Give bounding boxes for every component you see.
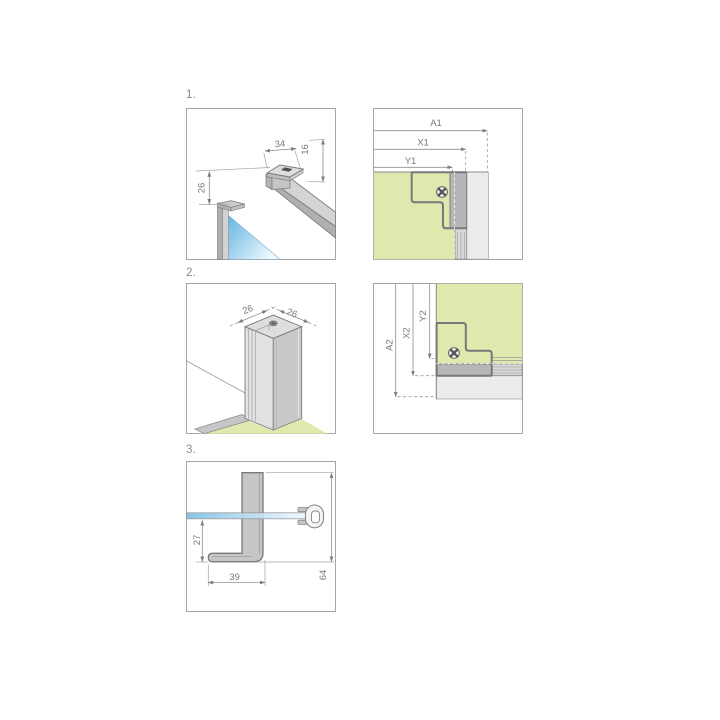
dim-label-a2: A2 (385, 339, 396, 351)
dim-label-x2: X2 (402, 327, 413, 339)
step-label-1: 1. (186, 89, 196, 101)
corner-profile-column (245, 315, 302, 430)
dim-label-64: 64 (318, 570, 329, 581)
dim-label-26: 26 (197, 183, 208, 194)
panel-wall-bracket-isometric: 34 16 26 (186, 108, 336, 260)
panel-floor-bracket-side: 27 39 64 (186, 461, 336, 612)
panel-plan-corner-2: A2 X2 Y2 (373, 283, 523, 434)
screw-icon (437, 187, 448, 198)
dim-label-34: 34 (274, 139, 285, 151)
bracket-over-profile (450, 173, 467, 229)
dim-label-39: 39 (229, 572, 240, 583)
dim-label-a1: A1 (430, 118, 442, 129)
panel-corner-profile-isometric: 26 26 (186, 283, 336, 434)
step-label-3: 3. (186, 444, 196, 456)
screw-icon (449, 348, 460, 359)
bracket-over-profile (437, 364, 492, 376)
dim-label-y1: Y1 (405, 156, 417, 167)
panel-plan-corner-1: A1 X1 Y1 (373, 108, 523, 260)
panel1-border (187, 109, 336, 260)
wall-area (436, 376, 522, 399)
dim-label-y2: Y2 (418, 310, 429, 322)
diagram-canvas: 1. 2. 3. (0, 0, 720, 720)
dim-label-16: 16 (300, 144, 311, 155)
glass-strip (187, 513, 306, 519)
step-label-2: 2. (186, 267, 196, 279)
dim-label-27: 27 (192, 535, 203, 546)
dim-label-x1: X1 (417, 138, 429, 149)
wall-area (467, 172, 489, 259)
